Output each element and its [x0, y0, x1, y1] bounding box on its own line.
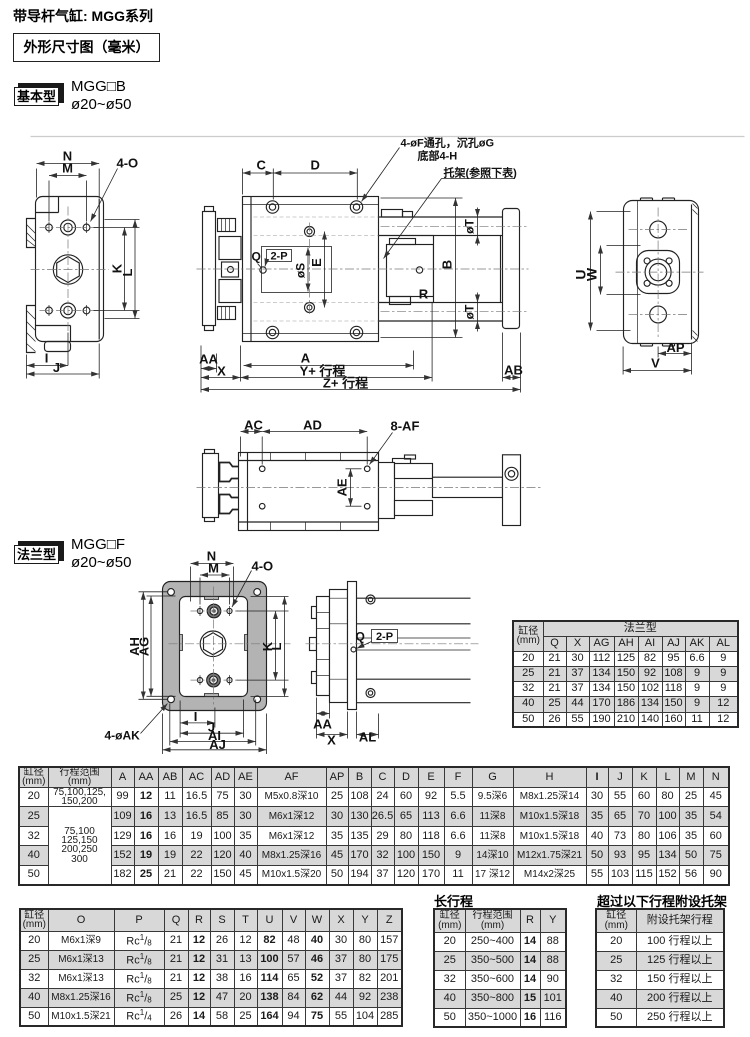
svg-text:AE: AE: [335, 478, 350, 496]
svg-text:Q: Q: [356, 630, 365, 644]
svg-text:I: I: [194, 709, 198, 724]
svg-text:2-P: 2-P: [270, 251, 287, 263]
svg-text:2-P: 2-P: [376, 631, 393, 643]
svg-text:R: R: [419, 287, 429, 302]
svg-text:D: D: [311, 158, 320, 173]
svg-text:AB: AB: [504, 363, 523, 378]
svg-text:M: M: [208, 561, 219, 576]
svg-text:øT: øT: [463, 219, 477, 234]
svg-text:øS: øS: [294, 263, 308, 278]
svg-text:J: J: [53, 360, 60, 375]
svg-text:AP: AP: [666, 340, 684, 355]
svg-text:AL: AL: [359, 730, 376, 745]
svg-text:L: L: [120, 268, 135, 276]
svg-text:W: W: [584, 267, 600, 281]
svg-text:4-O: 4-O: [117, 156, 139, 171]
svg-text:X: X: [217, 364, 226, 379]
svg-text:E: E: [309, 258, 324, 267]
svg-text:4-øAK: 4-øAK: [105, 729, 141, 743]
svg-text:I: I: [45, 351, 49, 366]
svg-text:托架(参照下表): 托架(参照下表): [444, 166, 518, 180]
svg-text:M: M: [62, 161, 73, 176]
svg-text:L: L: [269, 642, 284, 650]
svg-text:AD: AD: [303, 418, 322, 433]
svg-text:4-øF通孔，沉孔øG: 4-øF通孔，沉孔øG: [401, 136, 495, 150]
svg-text:X: X: [327, 733, 336, 748]
svg-text:AA: AA: [199, 352, 218, 367]
svg-text:4-O: 4-O: [252, 559, 274, 574]
svg-text:AC: AC: [244, 418, 263, 433]
svg-text:AJ: AJ: [209, 737, 226, 752]
svg-text:AA: AA: [313, 717, 332, 732]
svg-text:V: V: [651, 356, 660, 371]
svg-text:底部4-H: 底部4-H: [418, 149, 458, 163]
svg-text:B: B: [440, 260, 455, 269]
svg-text:Z+ 行程: Z+ 行程: [323, 376, 368, 391]
svg-text:øT: øT: [463, 304, 477, 319]
svg-text:C: C: [257, 158, 267, 173]
svg-text:Q: Q: [252, 250, 261, 264]
svg-text:AG: AG: [137, 637, 152, 657]
svg-text:8-AF: 8-AF: [391, 419, 420, 434]
